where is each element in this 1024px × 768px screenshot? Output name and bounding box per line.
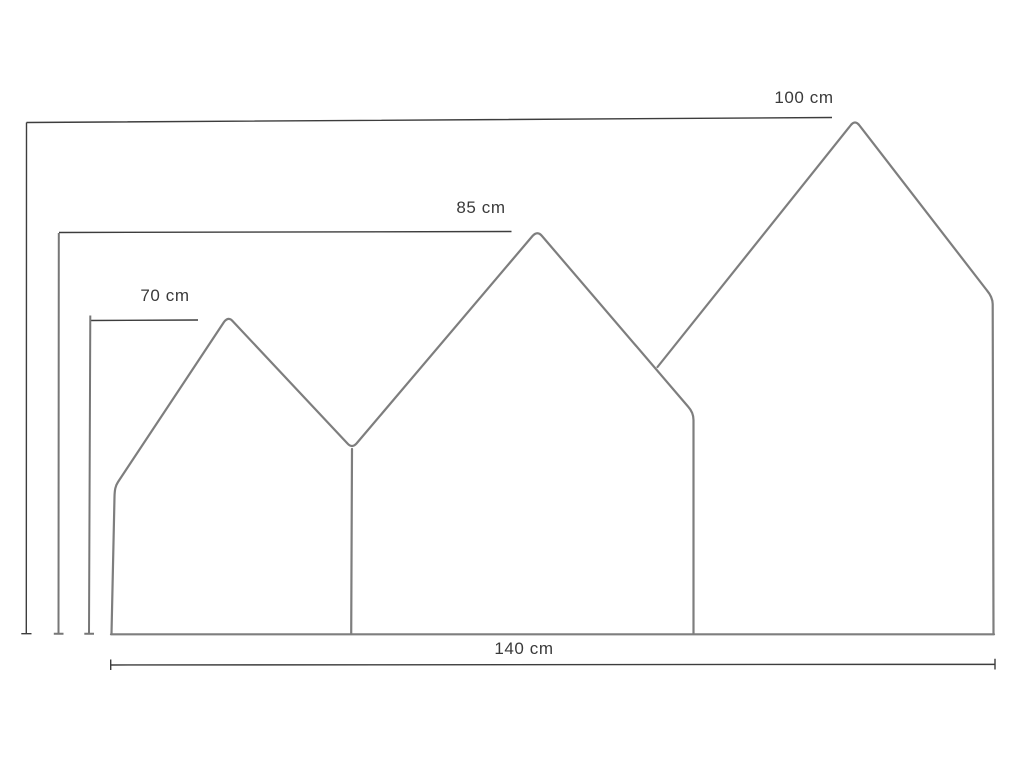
dim-line-70cm-vertical	[84, 316, 94, 634]
panel-outline-right	[658, 123, 994, 635]
dim-label-85cm: 85 cm	[421, 197, 541, 219]
dim-label-100cm: 100 cm	[744, 87, 864, 109]
dim-label-70cm: 70 cm	[105, 285, 225, 307]
dim-line-85cm-vertical	[54, 233, 64, 634]
dim-line-100cm	[21, 118, 832, 634]
dim-line-140cm	[111, 659, 995, 670]
panel-divider-left	[351, 449, 352, 634]
panel-outlines	[111, 123, 994, 635]
dim-label-140cm: 140 cm	[464, 638, 584, 660]
dim-line-85cm-horizontal	[59, 232, 512, 233]
dimension-diagram: 100 cm 85 cm 70 cm 140 cm	[0, 0, 1024, 768]
dim-line-70cm-horizontal	[90, 320, 198, 321]
